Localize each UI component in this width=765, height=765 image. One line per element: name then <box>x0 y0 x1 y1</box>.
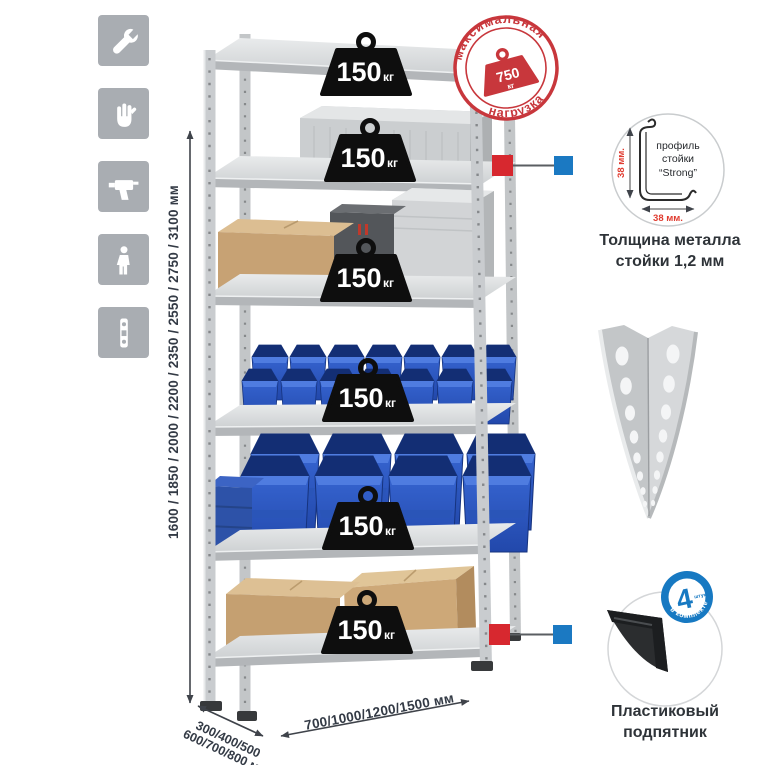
profile-detail: 38 мм. 38 мм. профиль стойки “Strong” <box>612 114 724 226</box>
svg-text:1600 / 1850 / 2000 / 2200 / 23: 1600 / 1850 / 2000 / 2200 / 2350 / 2550 … <box>166 185 181 539</box>
callout-red-square <box>489 624 510 645</box>
profile-callout <box>492 155 573 176</box>
callout-blue-square <box>554 156 573 175</box>
svg-text:150: 150 <box>337 615 382 645</box>
callout-blue-square <box>553 625 572 644</box>
svg-text:кг: кг <box>384 628 395 642</box>
svg-text:38 мм.: 38 мм. <box>616 148 627 178</box>
callout-red-square <box>492 155 513 176</box>
rack-infographic-scene: 150 кг 150 кг 150 кг 150 кг 150 кг <box>0 0 765 765</box>
profile-caption-line1: Толщина металла <box>599 232 740 249</box>
depth-dimension: 300/400/500 600/700/800 мм <box>181 706 275 765</box>
svg-text:150: 150 <box>340 143 385 173</box>
svg-text:38 мм.: 38 мм. <box>653 213 683 224</box>
svg-text:кг: кг <box>383 70 394 84</box>
height-dimension: 1600 / 1850 / 2000 / 2200 / 2350 / 2550 … <box>166 131 190 703</box>
svg-text:150: 150 <box>338 383 383 413</box>
foot-caption-line1: Пластиковый <box>611 703 719 720</box>
post-foot <box>237 711 257 721</box>
post-foot <box>200 701 222 711</box>
corner-post-image <box>600 325 696 518</box>
svg-text:700/1000/1200/1500 мм: 700/1000/1200/1500 мм <box>303 690 455 733</box>
svg-text:150: 150 <box>336 57 381 87</box>
svg-text:кг: кг <box>385 396 396 410</box>
foot-caption-line2: подпятник <box>623 724 708 741</box>
foot-callout <box>489 624 572 645</box>
svg-text:150: 150 <box>338 511 383 541</box>
svg-text:профиль: профиль <box>656 140 700 152</box>
plastic-foot-detail: 4 штуки в комплекте <box>607 566 722 706</box>
shelving-rack: 150 кг 150 кг 150 кг 150 кг 150 кг <box>200 26 535 721</box>
svg-text:стойки: стойки <box>662 153 694 165</box>
post-foot <box>471 661 493 671</box>
svg-text:кг: кг <box>385 524 396 538</box>
svg-text:кг: кг <box>383 276 394 290</box>
profile-caption-line2: стойки 1,2 мм <box>616 253 725 270</box>
svg-text:“Strong”: “Strong” <box>659 167 697 179</box>
width-dimension: 700/1000/1200/1500 мм <box>281 690 469 736</box>
svg-text:150: 150 <box>336 263 381 293</box>
svg-text:кг: кг <box>387 156 398 170</box>
